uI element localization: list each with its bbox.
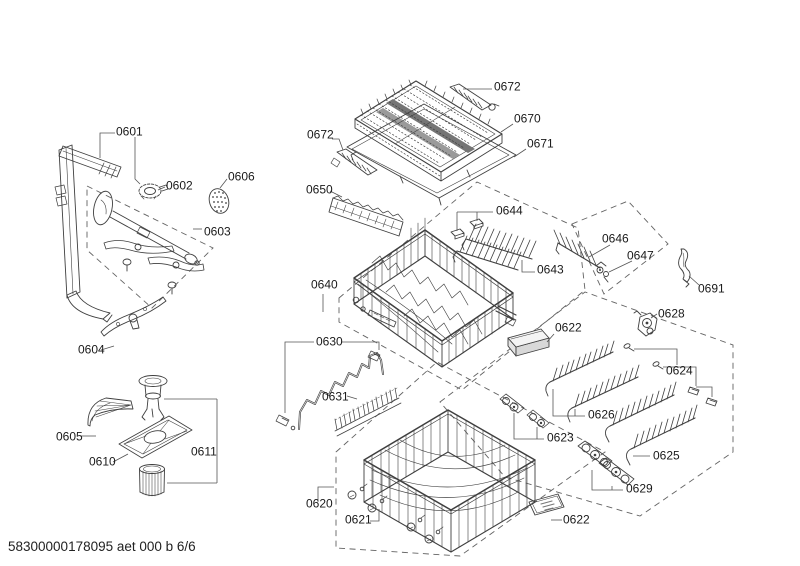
part-0601-drawing bbox=[55, 145, 121, 322]
part-0610-drawing bbox=[119, 416, 192, 458]
part-0606-drawing bbox=[206, 186, 232, 216]
diagram-canvas: 0601 0602 0606 0603 0604 0605 0610 0611 … bbox=[0, 0, 800, 566]
part-label-0622-upper: 0622 bbox=[555, 321, 582, 335]
part-label-0603: 0603 bbox=[204, 225, 231, 239]
part-label-0621: 0621 bbox=[345, 513, 372, 527]
boundary-lower-right-area bbox=[440, 292, 733, 516]
part-0625-drawing bbox=[606, 382, 698, 465]
part-label-0623: 0623 bbox=[547, 431, 574, 445]
document-number: 58300000178095 aet 000 b 6/6 bbox=[8, 539, 196, 554]
part-0611-microfilter-drawing bbox=[140, 465, 165, 497]
part-label-0626: 0626 bbox=[588, 408, 615, 422]
part-0628-drawing bbox=[634, 311, 657, 336]
parts-diagram-page: 0601 0602 0606 0603 0604 0605 0610 0611 … bbox=[0, 0, 800, 566]
assembly-boundaries bbox=[87, 182, 733, 556]
part-label-0624: 0624 bbox=[666, 364, 693, 378]
part-label-0671: 0671 bbox=[527, 137, 554, 151]
part-label-0628: 0628 bbox=[658, 307, 685, 321]
part-label-0631: 0631 bbox=[322, 390, 349, 404]
part-label-0647: 0647 bbox=[627, 249, 654, 263]
part-labels: 0601 0602 0606 0603 0604 0605 0610 0611 … bbox=[56, 80, 725, 527]
part-label-0622-lower: 0622 bbox=[563, 513, 590, 527]
part-0622-lower-drawing bbox=[529, 494, 564, 515]
part-0623-drawing bbox=[500, 394, 549, 428]
part-label-0644: 0644 bbox=[496, 204, 523, 218]
part-label-0670: 0670 bbox=[514, 112, 541, 126]
part-label-0606: 0606 bbox=[228, 170, 255, 184]
part-label-0650: 0650 bbox=[306, 183, 333, 197]
part-0650-drawing bbox=[329, 196, 403, 236]
part-0620-drawing bbox=[364, 410, 535, 552]
part-label-0646: 0646 bbox=[602, 232, 629, 246]
part-label-0629: 0629 bbox=[626, 482, 653, 496]
part-label-0611: 0611 bbox=[191, 445, 217, 459]
part-0691-drawing bbox=[679, 249, 690, 287]
part-0647-drawing bbox=[596, 262, 609, 282]
part-0671-drawing bbox=[347, 104, 516, 205]
part-label-0601: 0601 bbox=[116, 125, 143, 139]
part-label-0643: 0643 bbox=[537, 263, 564, 277]
part-label-0672-right: 0672 bbox=[494, 80, 521, 94]
part-label-0602: 0602 bbox=[166, 179, 193, 193]
part-label-0630: 0630 bbox=[316, 335, 343, 349]
boundary-upper-rack-area bbox=[339, 182, 585, 390]
part-label-0672-left: 0672 bbox=[307, 128, 334, 142]
part-0622-upper-drawing bbox=[508, 329, 549, 356]
part-label-0691: 0691 bbox=[698, 282, 725, 296]
part-0605-drawing bbox=[88, 398, 133, 426]
part-label-0605: 0605 bbox=[56, 430, 83, 444]
part-0602-drawing bbox=[139, 184, 168, 199]
part-0611-top-drawing bbox=[139, 376, 167, 421]
part-label-0620: 0620 bbox=[306, 497, 333, 511]
part-label-0604: 0604 bbox=[78, 343, 105, 357]
boundary-0620 bbox=[336, 362, 605, 556]
part-label-0625: 0625 bbox=[653, 449, 680, 463]
part-0629-drawing bbox=[578, 441, 634, 485]
part-0640-drawing bbox=[353, 218, 516, 367]
part-label-0640: 0640 bbox=[311, 278, 338, 292]
boundary-0646-area bbox=[572, 201, 668, 294]
part-label-0610: 0610 bbox=[89, 455, 116, 469]
part-0603-drawing bbox=[91, 190, 204, 294]
